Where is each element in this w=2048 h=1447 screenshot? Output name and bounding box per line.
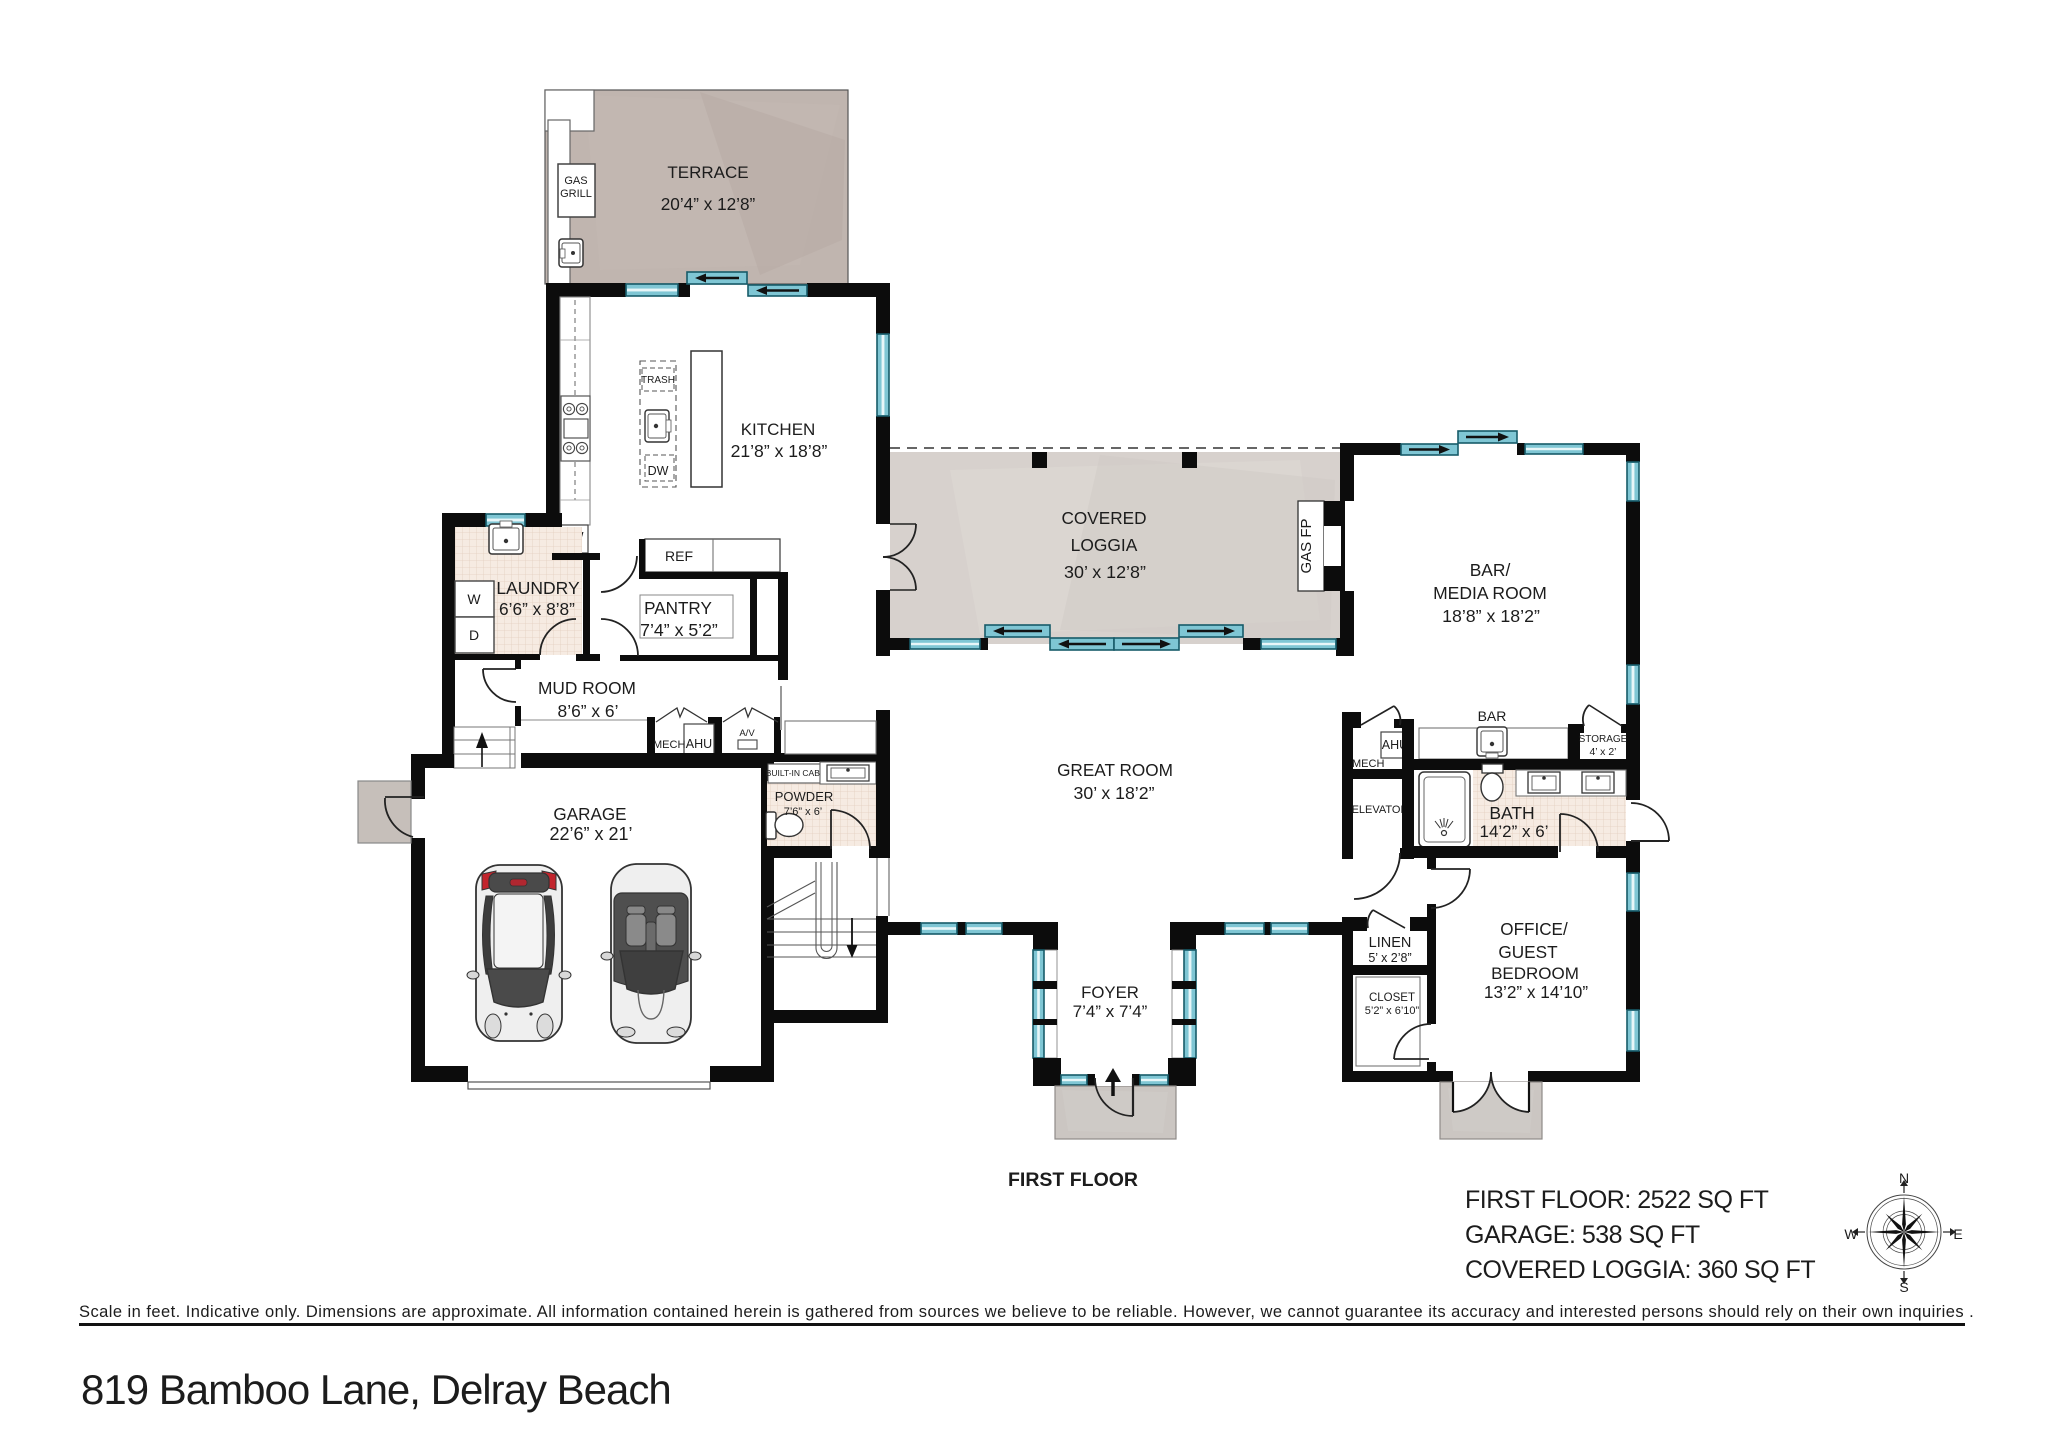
svg-text:MECH: MECH — [1352, 758, 1384, 770]
svg-text:MUD ROOM: MUD ROOM — [538, 678, 636, 698]
svg-text:7’6” x 6’: 7’6” x 6’ — [784, 806, 823, 818]
svg-text:KITCHEN: KITCHEN — [741, 420, 816, 439]
svg-text:GRILL: GRILL — [560, 188, 592, 200]
svg-text:DW: DW — [648, 464, 669, 478]
svg-text:GREAT ROOM: GREAT ROOM — [1057, 760, 1173, 780]
svg-text:W: W — [467, 591, 481, 607]
svg-text:14’2” x 6’: 14’2” x 6’ — [1480, 822, 1549, 841]
svg-text:LOGGIA: LOGGIA — [1071, 535, 1138, 555]
svg-text:S: S — [1899, 1279, 1908, 1295]
svg-text:GAS FP: GAS FP — [1298, 518, 1315, 573]
svg-text:4’ x 2’: 4’ x 2’ — [1589, 746, 1616, 758]
svg-text:D: D — [469, 627, 479, 643]
svg-text:FIRST FLOOR: 2522 SQ FT: FIRST FLOOR: 2522 SQ FT — [1465, 1186, 1769, 1214]
svg-text:819 Bamboo Lane, Delray Beach: 819 Bamboo Lane, Delray Beach — [81, 1366, 671, 1413]
svg-text:FIRST FLOOR: FIRST FLOOR — [1008, 1169, 1138, 1191]
svg-text:FOYER: FOYER — [1081, 983, 1139, 1002]
svg-text:ELEVATOR: ELEVATOR — [1352, 804, 1409, 816]
svg-text:A/V: A/V — [739, 728, 755, 739]
svg-text:BAR/: BAR/ — [1470, 560, 1511, 580]
svg-text:N: N — [1899, 1170, 1909, 1186]
svg-text:30’ x 12’8”: 30’ x 12’8” — [1064, 562, 1146, 582]
svg-text:LAUNDRY: LAUNDRY — [496, 578, 580, 598]
svg-text:TRASH: TRASH — [641, 375, 675, 386]
svg-text:MECH: MECH — [653, 739, 685, 751]
svg-text:COVERED: COVERED — [1062, 508, 1147, 528]
svg-text:E: E — [1953, 1226, 1962, 1242]
svg-text:21’8” x 18’8”: 21’8” x 18’8” — [731, 441, 828, 461]
svg-text:GAS: GAS — [564, 175, 587, 187]
svg-text:OFFICE/: OFFICE/ — [1500, 920, 1568, 939]
svg-text:AHU: AHU — [686, 737, 712, 751]
svg-text:7’4” x 5’2”: 7’4” x 5’2” — [640, 620, 718, 640]
svg-text:5’2” x 6’10”: 5’2” x 6’10” — [1365, 1005, 1420, 1017]
svg-text:BAR: BAR — [1478, 708, 1507, 724]
svg-text:6’6” x 8’8”: 6’6” x 8’8” — [499, 599, 575, 619]
svg-text:5’ x 2’8”: 5’ x 2’8” — [1368, 951, 1411, 965]
svg-text:CLOSET: CLOSET — [1369, 992, 1415, 1004]
svg-text:TERRACE: TERRACE — [667, 163, 748, 182]
svg-text:REF: REF — [665, 548, 693, 564]
svg-text:BUILT-IN CAB.: BUILT-IN CAB. — [766, 768, 823, 778]
svg-text:POWDER: POWDER — [775, 789, 834, 804]
svg-text:Scale in feet. Indicative only: Scale in feet. Indicative only. Dimensio… — [79, 1303, 1974, 1321]
svg-text:PANTRY: PANTRY — [644, 599, 712, 618]
svg-text:GARAGE: 538 SQ FT: GARAGE: 538 SQ FT — [1465, 1221, 1700, 1249]
svg-text:LINEN: LINEN — [1369, 935, 1412, 951]
svg-text:22’6” x 21’: 22’6” x 21’ — [549, 824, 632, 844]
svg-text:W: W — [1844, 1226, 1858, 1242]
svg-text:BEDROOM: BEDROOM — [1491, 964, 1579, 983]
svg-text:13’2” x 14’10”: 13’2” x 14’10” — [1484, 982, 1588, 1002]
svg-text:30’ x 18’2”: 30’ x 18’2” — [1074, 783, 1155, 803]
svg-text:8’6” x 6’: 8’6” x 6’ — [558, 701, 619, 721]
svg-text:20’4” x 12’8”: 20’4” x 12’8” — [661, 194, 756, 214]
svg-text:18’8” x 18’2”: 18’8” x 18’2” — [1442, 606, 1540, 626]
svg-text:7’4” x 7’4”: 7’4” x 7’4” — [1073, 1002, 1148, 1021]
svg-text:BATH: BATH — [1489, 803, 1534, 823]
svg-text:STORAGE: STORAGE — [1579, 734, 1628, 745]
svg-text:GUEST: GUEST — [1498, 942, 1558, 962]
svg-text:COVERED LOGGIA: 360 SQ FT: COVERED LOGGIA: 360 SQ FT — [1465, 1256, 1815, 1284]
svg-text:MEDIA ROOM: MEDIA ROOM — [1433, 583, 1547, 603]
svg-text:GARAGE: GARAGE — [553, 805, 626, 824]
